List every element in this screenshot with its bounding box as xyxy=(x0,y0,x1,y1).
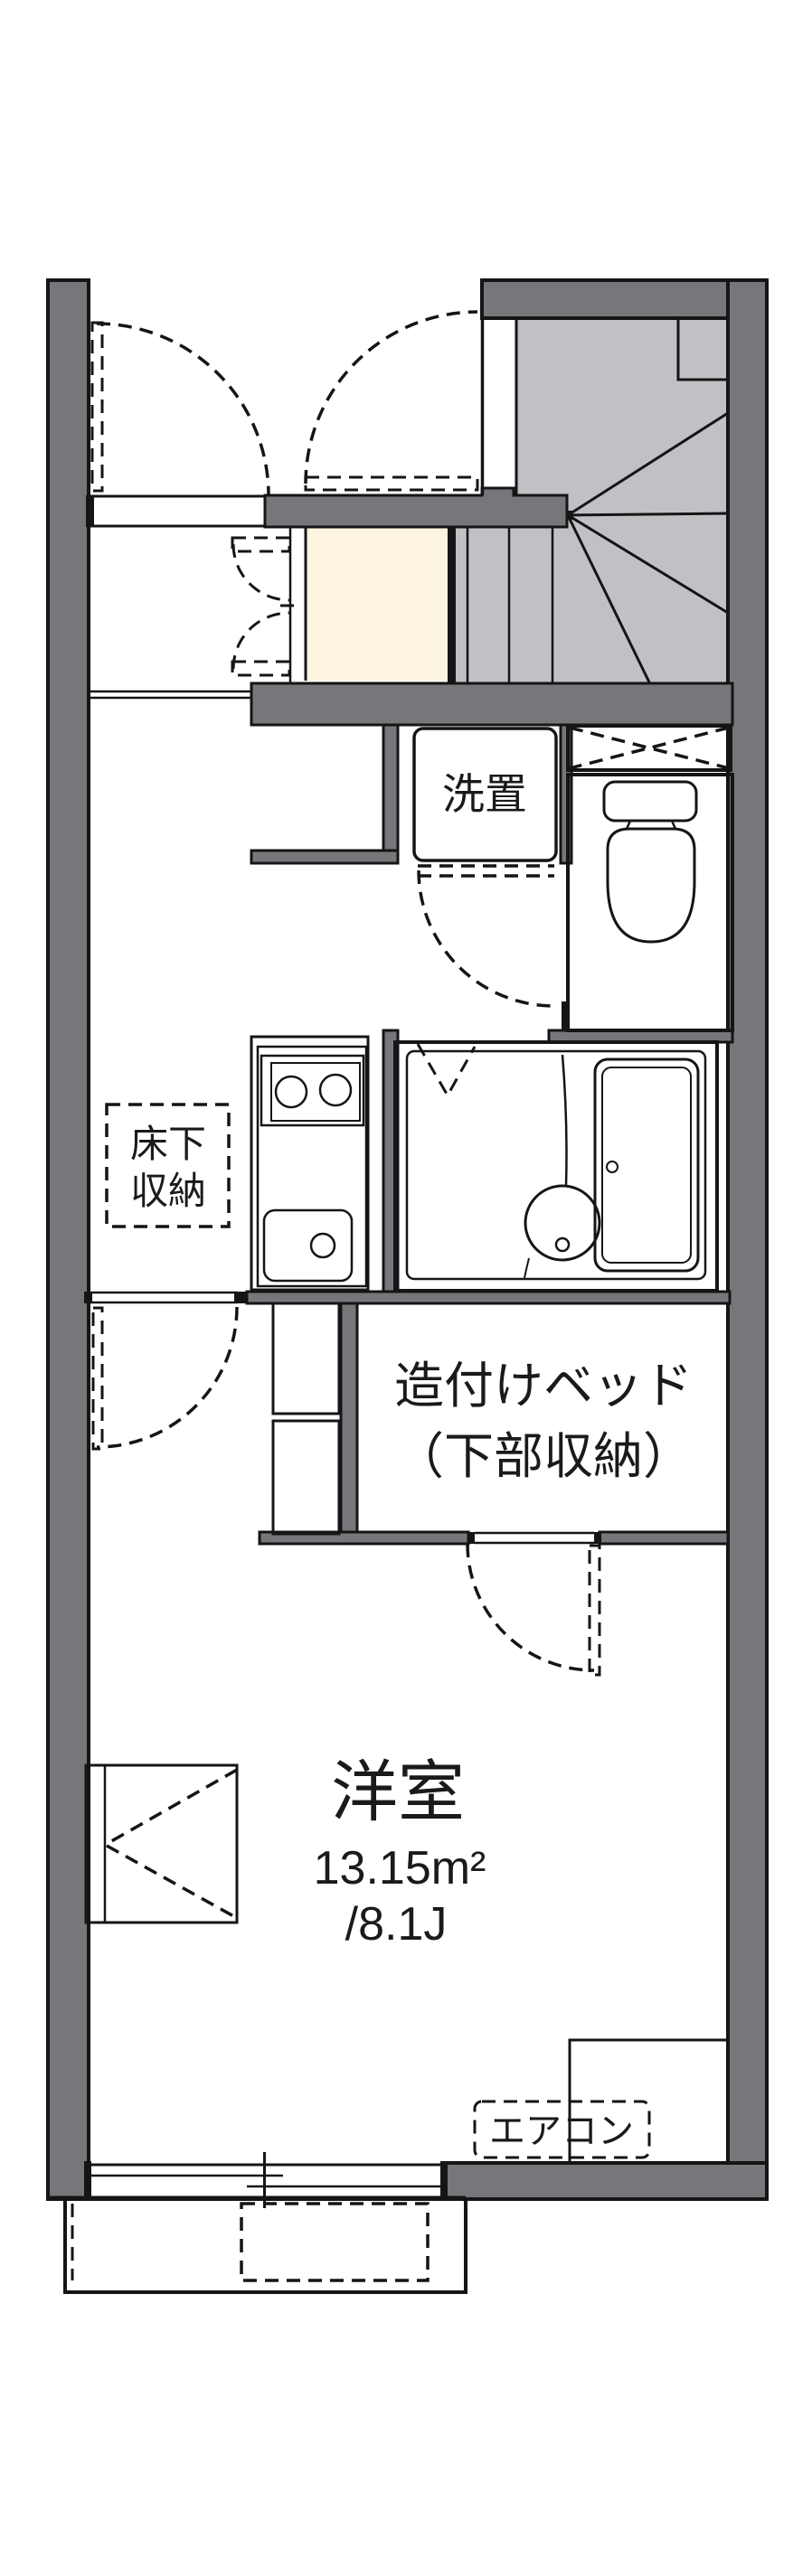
washroom-door-swing xyxy=(418,866,554,1006)
kitchen-counter xyxy=(251,1037,368,1290)
laundry-label: 洗置 xyxy=(442,770,527,818)
closet-double-doors xyxy=(232,538,294,675)
aircon-label: エアコン xyxy=(489,2111,634,2151)
built-in-bed-label-2: （下部収納） xyxy=(394,1428,693,1484)
kitchen-sink xyxy=(264,1210,352,1281)
bed-door-swing xyxy=(467,1544,600,1675)
room-name-label: 洋室 xyxy=(331,1754,465,1829)
bed-doorway xyxy=(468,1532,601,1544)
genkan-floor xyxy=(306,527,449,681)
room-doorway xyxy=(84,1292,247,1303)
underfloor-storage-label-1: 床下 xyxy=(130,1123,206,1165)
balcony xyxy=(65,2199,466,2292)
hall-kitchen-wall xyxy=(251,851,398,863)
bathtub-inner xyxy=(602,1067,691,1263)
bed-bottom-wall-right xyxy=(600,1532,728,1544)
balcony-hatch-outline xyxy=(241,2204,428,2280)
pipe-space-box xyxy=(568,726,731,770)
bathtub xyxy=(595,1059,698,1271)
right-outer-wall xyxy=(728,280,767,2199)
stove-burner-left xyxy=(276,1076,307,1107)
stairs-lower-run xyxy=(449,527,728,691)
room-area-label: 13.15m² xyxy=(314,1842,486,1894)
floorplan-svg: 床下 収納 洗置 造付けベッド （下部収納） 洋室 13.15m² /8.1J … xyxy=(0,0,812,2576)
toilet-room xyxy=(568,775,732,1030)
upper-room-opening xyxy=(89,496,265,526)
bath-stool-drain xyxy=(556,1238,569,1251)
sink-drain xyxy=(311,1234,335,1257)
laundry-left-wall xyxy=(383,725,398,863)
bed-side-shelf xyxy=(273,1303,339,1534)
bottom-outer-wall xyxy=(443,2163,767,2199)
bath-counter-line xyxy=(562,1055,567,1186)
entrance-lower-wall xyxy=(251,683,732,725)
floorplan-page: 床下 収納 洗置 造付けベッド （下部収納） 洋室 13.15m² /8.1J … xyxy=(0,0,812,2576)
upper-room-door-jamb xyxy=(86,495,94,527)
upper-room-door-swing xyxy=(92,323,269,495)
bathroom xyxy=(395,1042,717,1291)
entrance-door-swing xyxy=(306,312,477,490)
kitchen-bed-wall xyxy=(247,1292,730,1303)
entrance-genkan xyxy=(290,527,456,691)
built-in-bed-label-1: 造付けベッド xyxy=(394,1358,693,1414)
genkan-stairs-divider xyxy=(448,527,456,691)
toilet-tank xyxy=(604,782,696,821)
toilet-bowl xyxy=(608,829,694,942)
bathtub-drain xyxy=(607,1161,618,1172)
stove-top xyxy=(271,1063,360,1121)
bed-left-wall xyxy=(341,1303,357,1534)
underfloor-storage: 床下 収納 xyxy=(107,1105,229,1227)
top-outer-wall xyxy=(482,280,767,318)
bath-stool xyxy=(525,1186,600,1260)
room-tatami-label: /8.1J xyxy=(345,1898,448,1951)
kitchen-unit xyxy=(251,1037,368,1290)
corridor-top-opening xyxy=(89,691,251,698)
aircon: エアコン xyxy=(475,2101,649,2158)
bath-floor-line xyxy=(524,1258,529,1278)
underfloor-storage-label-2: 収納 xyxy=(130,1170,206,1212)
bay-window-box xyxy=(86,1765,237,1923)
left-outer-wall xyxy=(48,280,89,2199)
stove-burner-right xyxy=(320,1075,351,1105)
room-door-swing xyxy=(93,1307,237,1449)
